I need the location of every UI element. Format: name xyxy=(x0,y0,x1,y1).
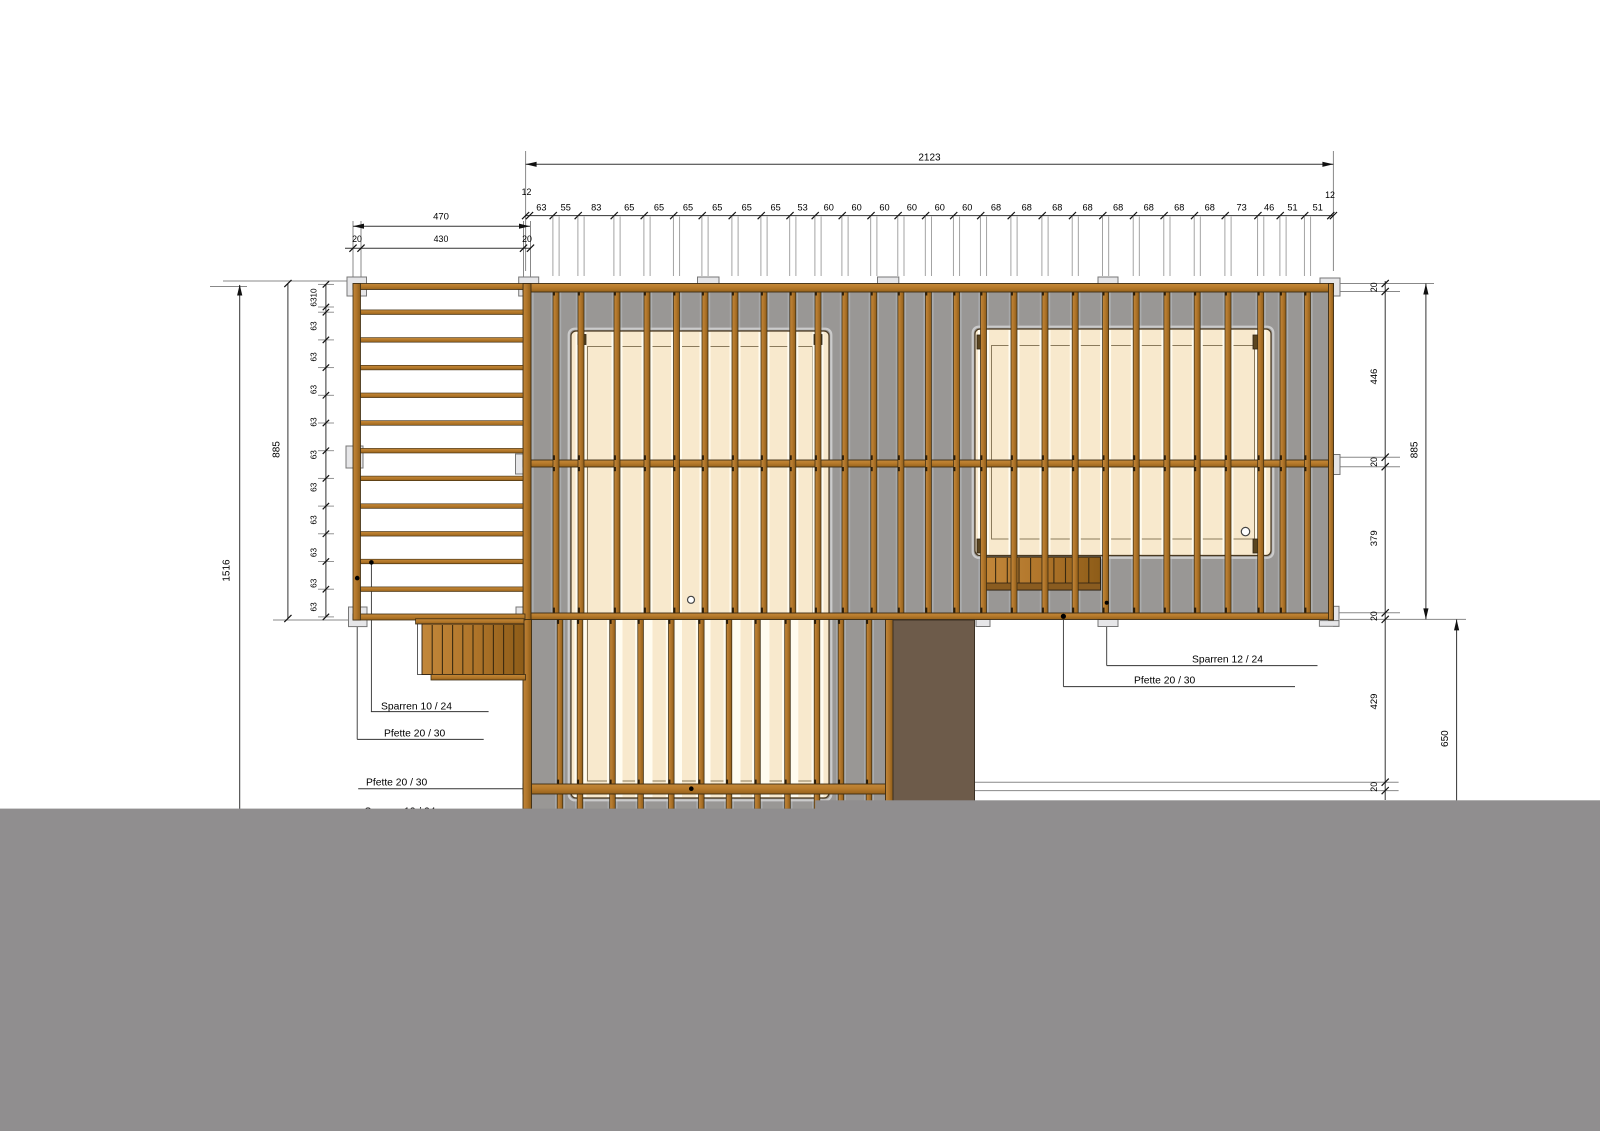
svg-text:60: 60 xyxy=(851,202,861,212)
svg-text:Sparren 10 / 24: Sparren 10 / 24 xyxy=(381,701,452,712)
svg-text:55: 55 xyxy=(561,202,571,212)
svg-text:73: 73 xyxy=(1236,202,1246,212)
svg-text:470: 470 xyxy=(433,212,449,223)
svg-text:63: 63 xyxy=(310,602,319,612)
svg-text:63: 63 xyxy=(310,321,319,331)
svg-text:885: 885 xyxy=(272,441,283,458)
svg-text:430: 430 xyxy=(434,234,449,244)
svg-text:68: 68 xyxy=(1205,202,1215,212)
svg-text:60: 60 xyxy=(907,202,917,212)
svg-text:12: 12 xyxy=(1325,190,1335,200)
svg-text:885: 885 xyxy=(1409,441,1420,458)
svg-text:63: 63 xyxy=(310,385,319,395)
svg-text:20: 20 xyxy=(1369,282,1379,292)
svg-text:Sparren 12 / 24: Sparren 12 / 24 xyxy=(1192,655,1263,666)
svg-text:68: 68 xyxy=(1113,202,1123,212)
svg-text:68: 68 xyxy=(1052,202,1062,212)
svg-text:60: 60 xyxy=(935,202,945,212)
svg-text:51: 51 xyxy=(1287,202,1297,212)
svg-text:6310: 6310 xyxy=(310,288,319,307)
svg-text:Pfette 20 / 30: Pfette 20 / 30 xyxy=(384,729,446,740)
svg-text:63: 63 xyxy=(310,352,319,362)
svg-text:68: 68 xyxy=(1082,202,1092,212)
svg-text:60: 60 xyxy=(962,202,972,212)
svg-text:20: 20 xyxy=(352,234,362,244)
svg-text:379: 379 xyxy=(1369,530,1380,546)
svg-text:46: 46 xyxy=(1264,202,1274,212)
svg-text:63: 63 xyxy=(310,578,319,588)
svg-text:429: 429 xyxy=(1369,694,1380,710)
svg-text:Pfette 20 / 30: Pfette 20 / 30 xyxy=(1134,676,1196,687)
svg-text:65: 65 xyxy=(770,202,780,212)
svg-text:63: 63 xyxy=(310,482,319,492)
svg-text:65: 65 xyxy=(742,202,752,212)
svg-text:20: 20 xyxy=(522,234,532,244)
svg-text:63: 63 xyxy=(536,202,546,212)
svg-text:Pfette 20 / 30: Pfette 20 / 30 xyxy=(366,777,428,788)
svg-text:68: 68 xyxy=(991,202,1001,212)
svg-text:63: 63 xyxy=(310,450,319,460)
svg-text:68: 68 xyxy=(1174,202,1184,212)
svg-text:68: 68 xyxy=(1144,202,1154,212)
svg-text:65: 65 xyxy=(683,202,693,212)
svg-text:650: 650 xyxy=(1440,730,1451,747)
svg-text:63: 63 xyxy=(310,515,319,525)
svg-text:60: 60 xyxy=(879,202,889,212)
svg-text:65: 65 xyxy=(624,202,634,212)
svg-text:20: 20 xyxy=(1369,611,1379,621)
svg-text:65: 65 xyxy=(654,202,664,212)
svg-text:63: 63 xyxy=(310,548,319,558)
svg-text:12: 12 xyxy=(522,187,532,197)
svg-text:1516: 1516 xyxy=(222,559,233,582)
svg-text:63: 63 xyxy=(310,417,319,427)
svg-text:20: 20 xyxy=(1369,457,1379,467)
svg-text:60: 60 xyxy=(824,202,834,212)
svg-text:446: 446 xyxy=(1369,369,1380,385)
svg-text:20: 20 xyxy=(1369,782,1379,792)
svg-text:83: 83 xyxy=(591,202,601,212)
svg-text:68: 68 xyxy=(1022,202,1032,212)
svg-text:2123: 2123 xyxy=(918,153,941,164)
svg-text:51: 51 xyxy=(1313,202,1323,212)
svg-text:65: 65 xyxy=(712,202,722,212)
svg-text:53: 53 xyxy=(797,202,807,212)
